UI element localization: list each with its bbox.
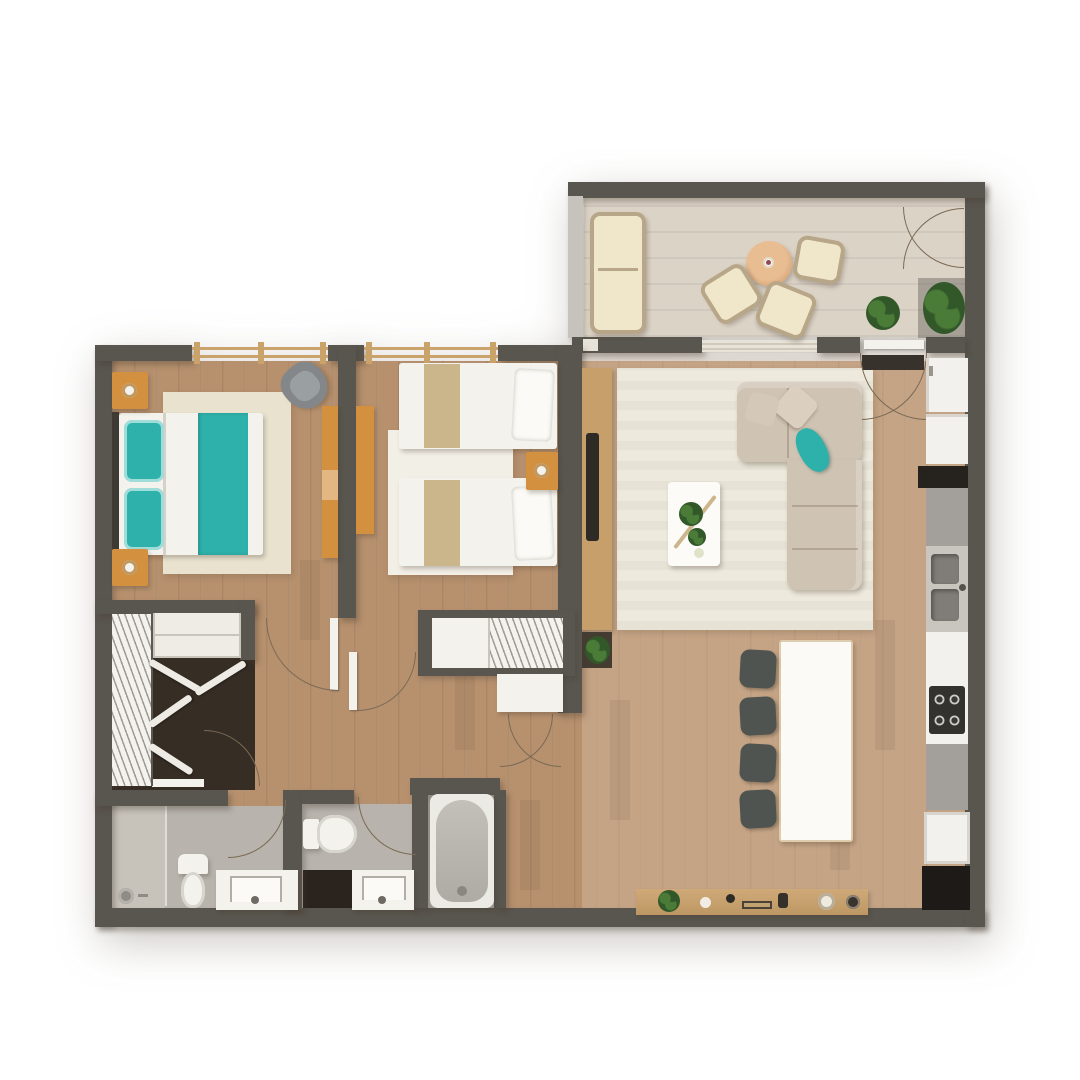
cooktop-burner — [934, 691, 945, 708]
wall-living-top-b — [817, 337, 860, 353]
window-mullion — [366, 342, 372, 364]
living-window-line — [702, 348, 817, 350]
gas-cooktop — [929, 686, 965, 734]
table-lamp — [122, 383, 137, 398]
sideboard-plate — [846, 895, 860, 909]
window-mullion — [320, 342, 326, 364]
walkin-wardrobe-rail — [112, 614, 153, 786]
kitchen-dark-cabinet — [922, 866, 970, 910]
wall-balcony-left-railing — [568, 196, 583, 338]
kitchen-dark-cabinet — [918, 466, 968, 488]
closet2-wardrobe-clothes — [490, 618, 563, 668]
wall-bedrooms-top-a — [95, 345, 192, 361]
sideboard-tray — [742, 901, 772, 909]
twin-bed-a-blanket — [424, 364, 460, 448]
table-lamp — [534, 463, 549, 478]
toilet2-bowl — [317, 815, 357, 853]
floor-plan-canvas — [0, 0, 1080, 1080]
balcony-plant — [866, 296, 900, 330]
dining-chair — [739, 696, 777, 736]
sofa-right-section — [787, 460, 862, 590]
twin-bed-b-blanket — [424, 480, 460, 566]
teal-pillow — [124, 488, 164, 550]
twin-bed-b-pillow — [511, 485, 555, 561]
dining-table — [779, 640, 853, 842]
shower-drain — [138, 894, 148, 897]
coffee-table-flower — [694, 548, 704, 558]
table-lamp — [122, 560, 137, 575]
console-plant — [585, 636, 610, 664]
bed-headboard — [112, 412, 119, 557]
window-mullion — [258, 342, 264, 364]
teal-pillow — [124, 420, 164, 482]
wall-closet-top — [95, 600, 255, 614]
closet2-shelf — [432, 618, 490, 668]
dining-chair — [739, 649, 777, 689]
floor-plank — [875, 620, 895, 750]
shower-fixture — [118, 888, 134, 904]
small-sill — [583, 339, 598, 351]
twin-bed-a-pillow — [511, 368, 555, 442]
dining-chairs — [740, 648, 778, 848]
wall-outer-left — [95, 345, 112, 925]
kitchen-counter — [926, 744, 968, 810]
dining-chair — [739, 789, 777, 829]
wall-bedroom-divider — [338, 345, 356, 618]
wall-bath-top-a — [95, 790, 228, 806]
sideboard-plant — [658, 890, 680, 912]
sideboard-bottle — [778, 893, 788, 908]
balcony-sofa-cushion-split — [598, 268, 638, 271]
cooktop-burner — [949, 691, 960, 708]
coffee-table-plant — [679, 502, 703, 526]
living-window-line — [702, 343, 817, 345]
wall-tub-right — [494, 790, 506, 908]
wall-balcony-top — [568, 182, 985, 198]
sink-faucet — [959, 584, 966, 591]
balcony-plant — [923, 282, 965, 334]
floor-plank — [520, 800, 540, 890]
toilet-bowl — [181, 872, 205, 908]
vanity-faucet — [251, 896, 259, 904]
wall-closet-right — [240, 600, 255, 660]
bedroom2-door-leaf — [349, 652, 357, 710]
window-bedroom2-glass — [364, 355, 498, 358]
shower2-dark-tray — [303, 870, 352, 908]
shower1-glass — [165, 806, 167, 906]
balcony-chair — [792, 234, 847, 286]
sideboard-plate — [818, 893, 835, 910]
dining-chair — [739, 743, 777, 783]
wall-living-top-c — [926, 337, 965, 353]
apartment-floor-plan — [0, 0, 1080, 1080]
coffee-table-plant — [688, 528, 706, 546]
bed-teal-runner — [198, 413, 248, 555]
bathtub-drain — [457, 886, 467, 896]
desk-chair-hint — [322, 470, 338, 500]
sideboard-bowl — [726, 894, 735, 903]
toilet-tank — [178, 854, 208, 874]
walkin-shelf-line — [153, 634, 241, 636]
entry-door-leaf — [864, 340, 924, 349]
sofa-cushion-line — [792, 505, 858, 507]
window-bedroom2-glass — [364, 347, 498, 350]
closet-door-leaf — [152, 779, 204, 787]
fridge-handle — [929, 366, 933, 376]
vanity2-faucet — [378, 896, 386, 904]
cooktop-burner — [949, 712, 960, 729]
balcony-wicker-sofa — [590, 212, 646, 334]
living-window-sill — [702, 340, 817, 352]
bedroom2-desk — [356, 406, 374, 534]
sink-basin — [931, 554, 959, 584]
floor-plank — [610, 700, 630, 820]
wall-bath2-top — [302, 790, 354, 804]
appliance — [926, 414, 968, 464]
kitchen-counter — [926, 488, 968, 546]
sideboard-plate — [700, 897, 711, 908]
sink-basin — [931, 589, 959, 621]
coffee-cup-dot — [766, 260, 771, 265]
sofa-cushion-line — [792, 548, 858, 550]
window-mullion — [490, 342, 496, 364]
tv — [586, 433, 599, 541]
oven — [924, 812, 970, 864]
window-mullion — [194, 342, 200, 364]
cooktop-burner — [934, 712, 945, 729]
closet2-cabinet — [497, 670, 563, 712]
window-mullion — [424, 342, 430, 364]
